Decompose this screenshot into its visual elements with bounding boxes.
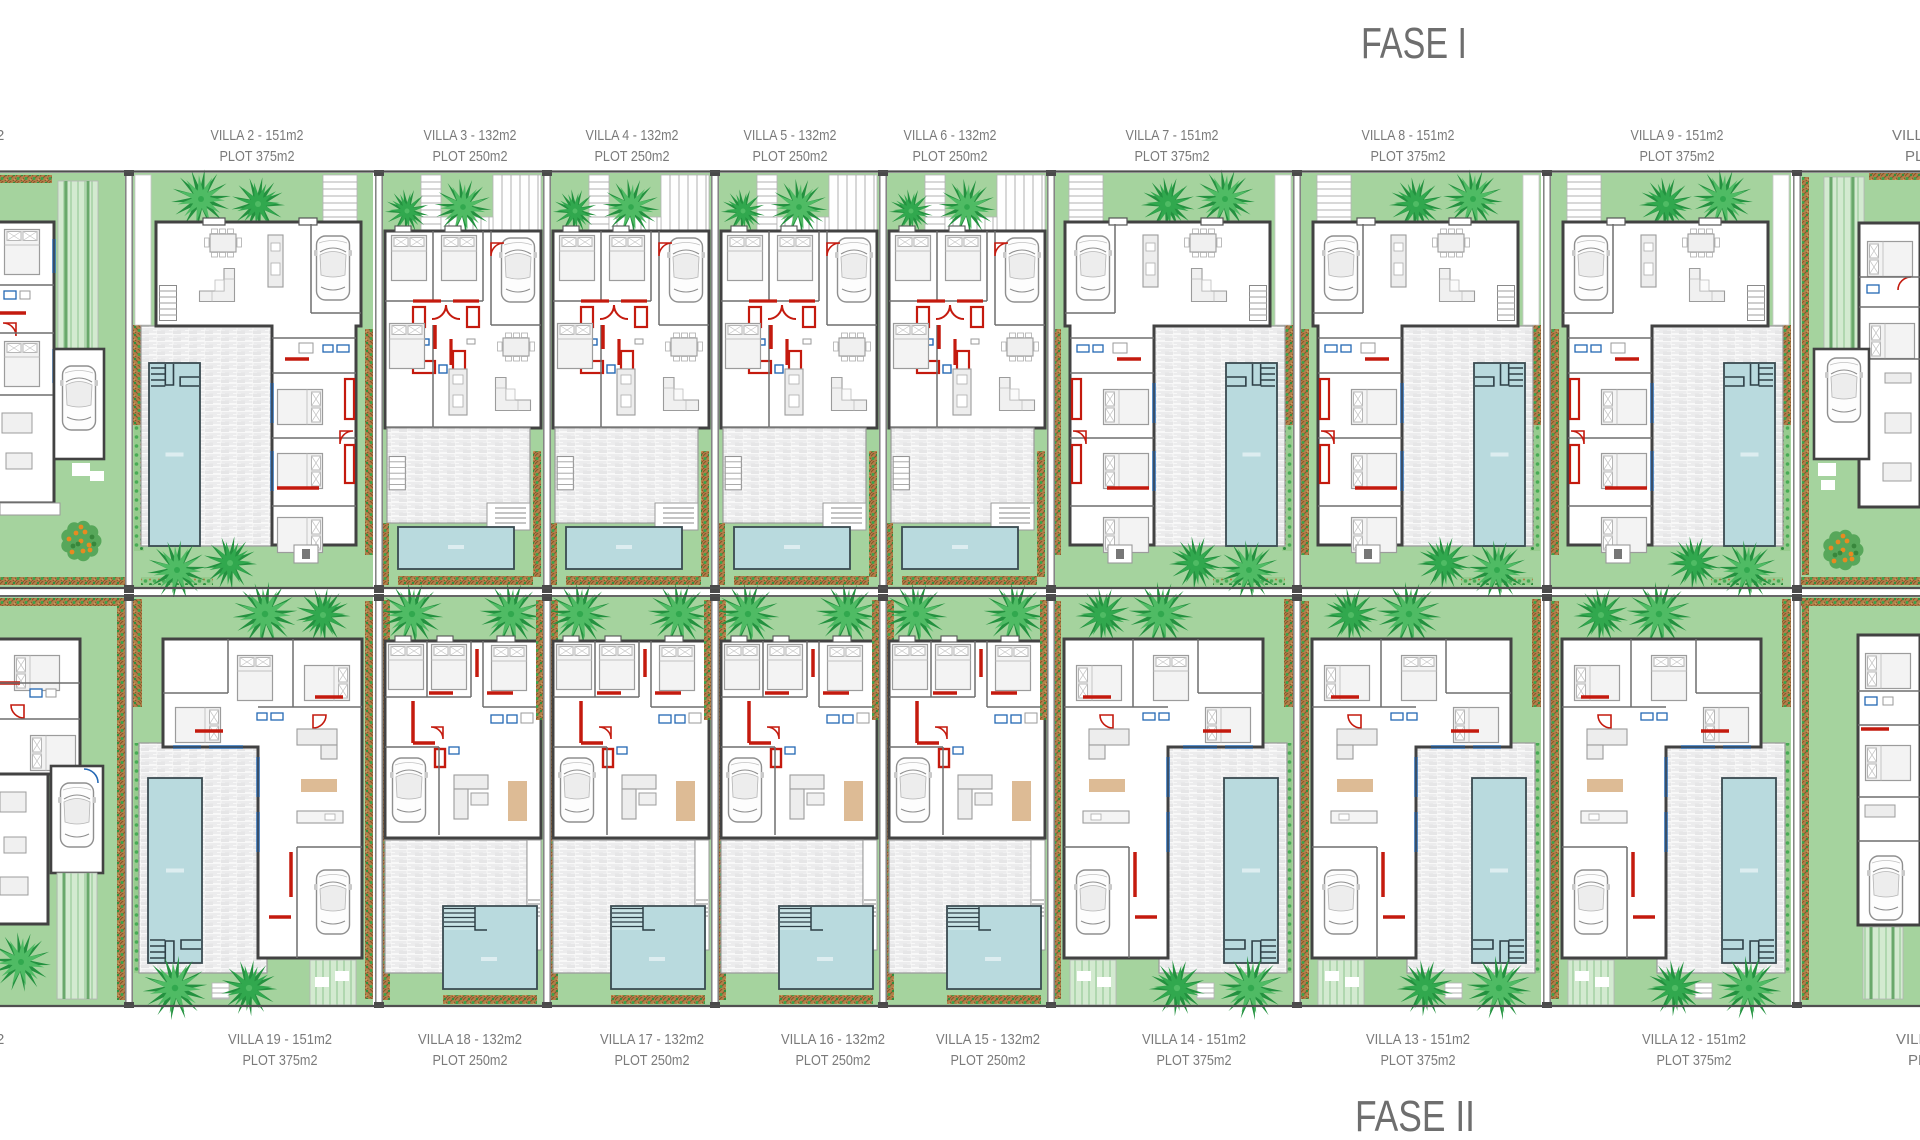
svg-text:VILLA 6 - 132m2: VILLA 6 - 132m2	[904, 127, 997, 144]
svg-text:VILLA 19 - 151m2: VILLA 19 - 151m2	[228, 1031, 332, 1048]
svg-text:PLOT 375m2: PLOT 375m2	[220, 148, 295, 165]
svg-text:PLOT 250m2: PLOT 250m2	[433, 148, 508, 165]
svg-text:2: 2	[0, 1031, 4, 1048]
svg-text:PLOT 375m2: PLOT 375m2	[1640, 148, 1715, 165]
svg-text:VILLA 18 - 132m2: VILLA 18 - 132m2	[418, 1031, 522, 1048]
svg-text:PLOT 250m2: PLOT 250m2	[753, 148, 828, 165]
svg-text:PLOT 375m2: PLOT 375m2	[1908, 1052, 1920, 1069]
svg-text:PLOT 375m2: PLOT 375m2	[1135, 148, 1210, 165]
svg-text:FASE I: FASE I	[1361, 19, 1467, 68]
svg-text:PLOT 375m2: PLOT 375m2	[243, 1052, 318, 1069]
svg-text:PLOT 250m2: PLOT 250m2	[913, 148, 988, 165]
svg-text:VILLA 8 - 151m2: VILLA 8 - 151m2	[1362, 127, 1455, 144]
svg-text:FASE II: FASE II	[1355, 1092, 1475, 1140]
svg-text:VILLA 3 - 132m2: VILLA 3 - 132m2	[424, 127, 517, 144]
svg-text:2: 2	[0, 127, 4, 144]
svg-text:PLOT 375m2: PLOT 375m2	[1381, 1052, 1456, 1069]
svg-text:PLOT 250m2: PLOT 250m2	[951, 1052, 1026, 1069]
svg-text:VILLA 2 - 151m2: VILLA 2 - 151m2	[211, 127, 304, 144]
svg-text:PLOT 250m2: PLOT 250m2	[796, 1052, 871, 1069]
svg-text:PLOT 250m2: PLOT 250m2	[433, 1052, 508, 1069]
svg-text:VILLA 16 - 132m2: VILLA 16 - 132m2	[781, 1031, 885, 1048]
svg-text:VILLA 4 - 132m2: VILLA 4 - 132m2	[586, 127, 679, 144]
svg-text:PLOT 375m2: PLOT 375m2	[1157, 1052, 1232, 1069]
svg-text:VILLA 17 - 132m2: VILLA 17 - 132m2	[600, 1031, 704, 1048]
svg-text:PLOT 250m2: PLOT 250m2	[595, 148, 670, 165]
svg-text:PLOT 375m2: PLOT 375m2	[1657, 1052, 1732, 1069]
svg-text:PLOT 375m2: PLOT 375m2	[1905, 148, 1920, 165]
svg-text:VILLA 10 - 151m2: VILLA 10 - 151m2	[1892, 127, 1920, 144]
svg-text:VILLA 5 - 132m2: VILLA 5 - 132m2	[744, 127, 837, 144]
svg-text:VILLA 7 - 151m2: VILLA 7 - 151m2	[1126, 127, 1219, 144]
svg-text:VILLA 15 - 132m2: VILLA 15 - 132m2	[936, 1031, 1040, 1048]
svg-text:VILLA 11 - 151m2: VILLA 11 - 151m2	[1896, 1031, 1920, 1048]
svg-text:VILLA 13 - 151m2: VILLA 13 - 151m2	[1366, 1031, 1470, 1048]
svg-text:PLOT 375m2: PLOT 375m2	[1371, 148, 1446, 165]
svg-text:VILLA 9 - 151m2: VILLA 9 - 151m2	[1631, 127, 1724, 144]
svg-text:PLOT 250m2: PLOT 250m2	[615, 1052, 690, 1069]
svg-text:VILLA 14 - 151m2: VILLA 14 - 151m2	[1142, 1031, 1246, 1048]
svg-text:VILLA 12 - 151m2: VILLA 12 - 151m2	[1642, 1031, 1746, 1048]
